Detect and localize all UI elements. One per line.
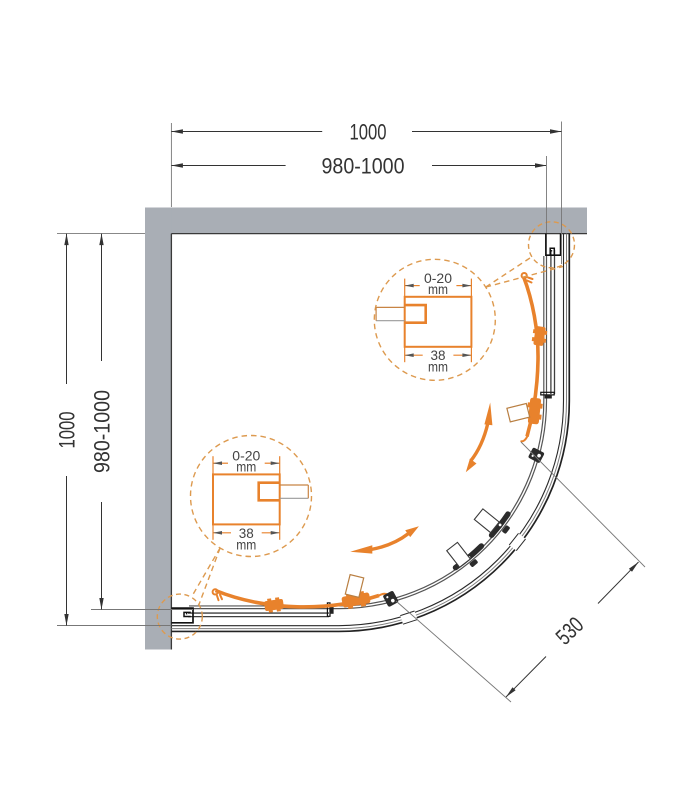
svg-text:1000: 1000 (350, 119, 387, 144)
svg-text:mm: mm (428, 281, 448, 297)
svg-text:980-1000: 980-1000 (90, 390, 115, 473)
svg-text:mm: mm (236, 536, 256, 552)
svg-text:1000: 1000 (55, 412, 80, 449)
svg-text:mm: mm (236, 458, 256, 474)
svg-text:980-1000: 980-1000 (322, 153, 405, 178)
svg-text:mm: mm (428, 359, 448, 375)
